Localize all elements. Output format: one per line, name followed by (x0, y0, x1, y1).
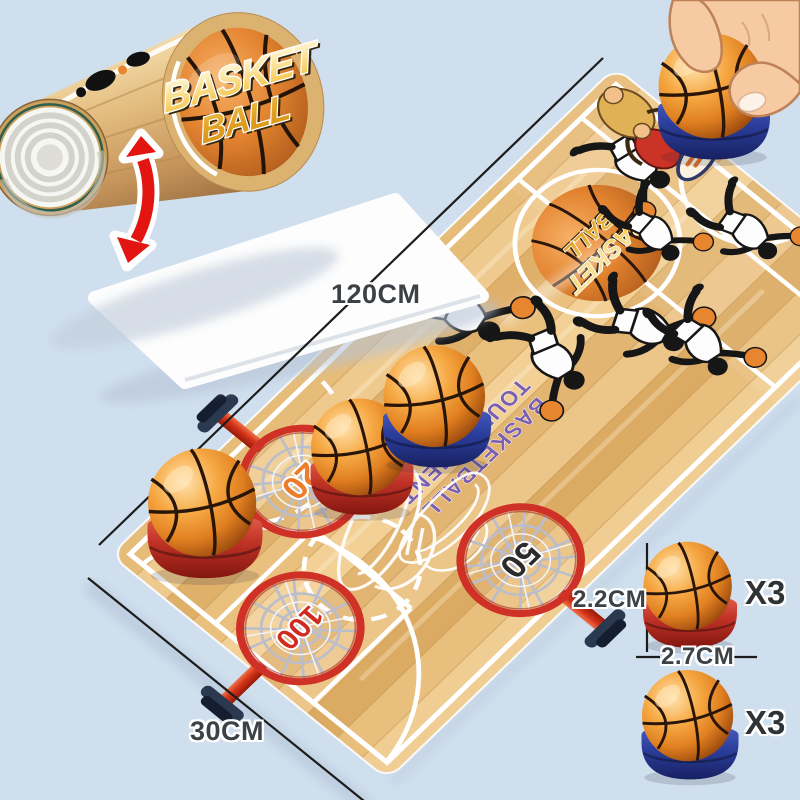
overlay (0, 0, 800, 800)
label-ball-height: 2.2CM (573, 586, 646, 614)
spec-ball-blue (634, 662, 742, 786)
flick-ball-red (138, 438, 266, 585)
label-blue-ball-qty: X3 (745, 704, 785, 742)
flick-ball-blue (374, 336, 494, 474)
label-orange-ball-qty: X3 (745, 574, 785, 612)
label-mat-width: 30CM (190, 716, 264, 747)
label-ball-diameter: 2.7CM (661, 643, 734, 671)
product-image: BASKET BALL BASKET BALL BASKETBALL TOURN… (0, 0, 800, 800)
label-mat-length: 120CM (331, 279, 421, 310)
dimension-line-30cm (88, 578, 364, 800)
spec-ball-red (635, 534, 740, 654)
